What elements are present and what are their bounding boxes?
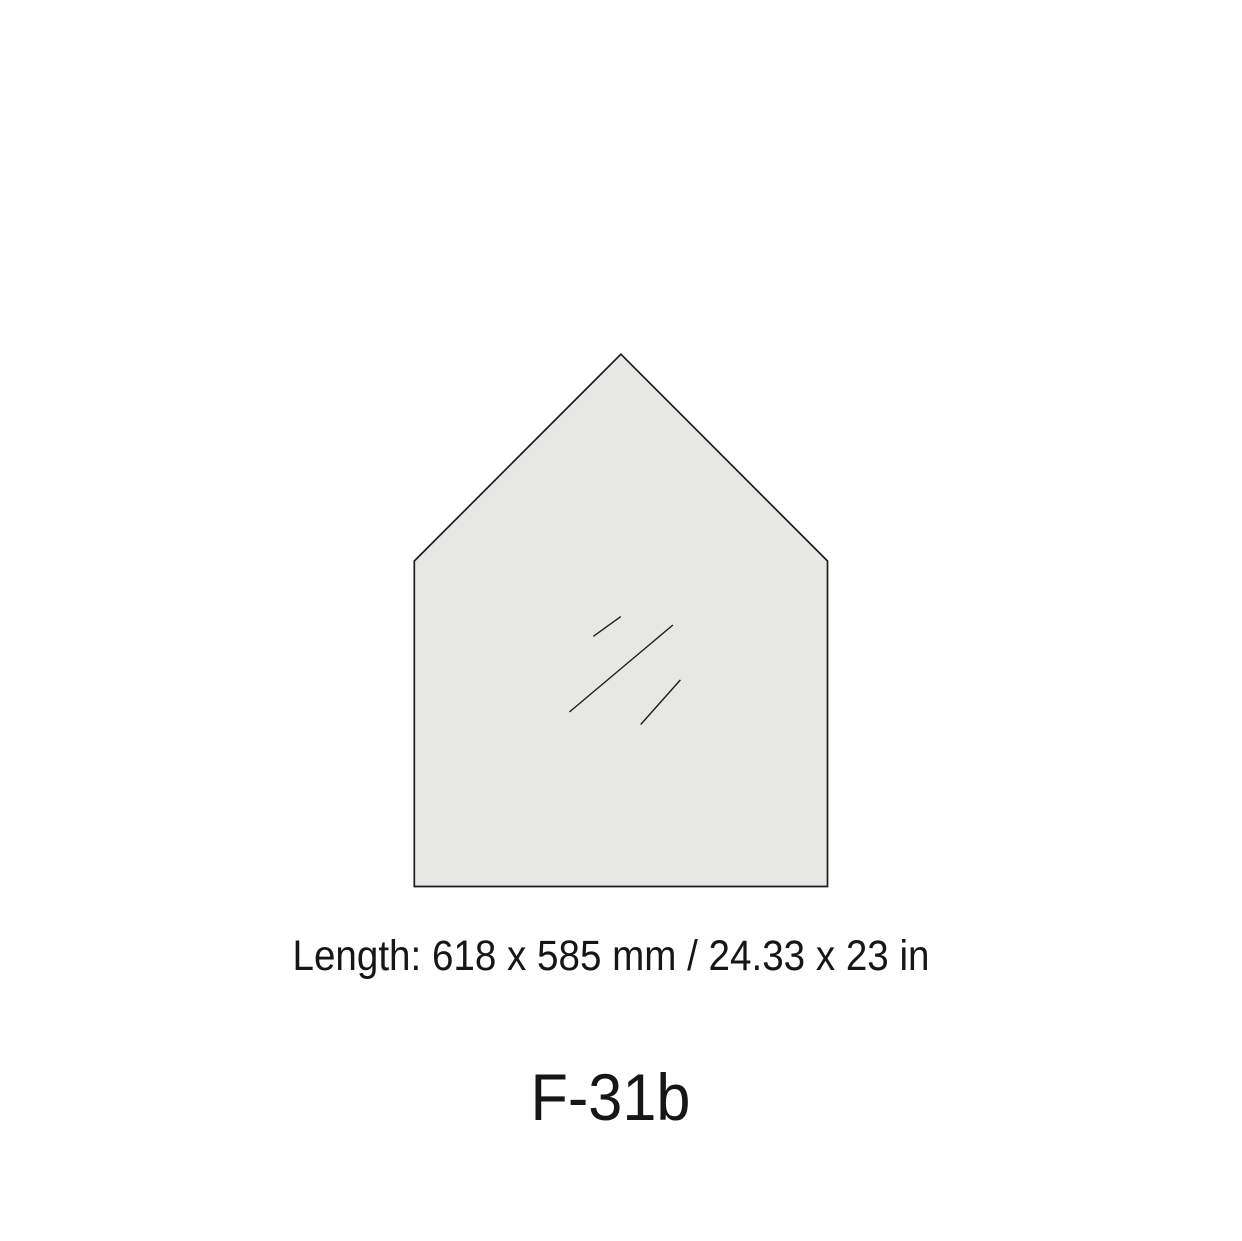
- svg-text:F-31b: F-31b: [531, 1060, 691, 1134]
- svg-text:Length: 618 x 585 mm / 24.33 x: Length: 618 x 585 mm / 24.33 x 23 in: [293, 933, 930, 980]
